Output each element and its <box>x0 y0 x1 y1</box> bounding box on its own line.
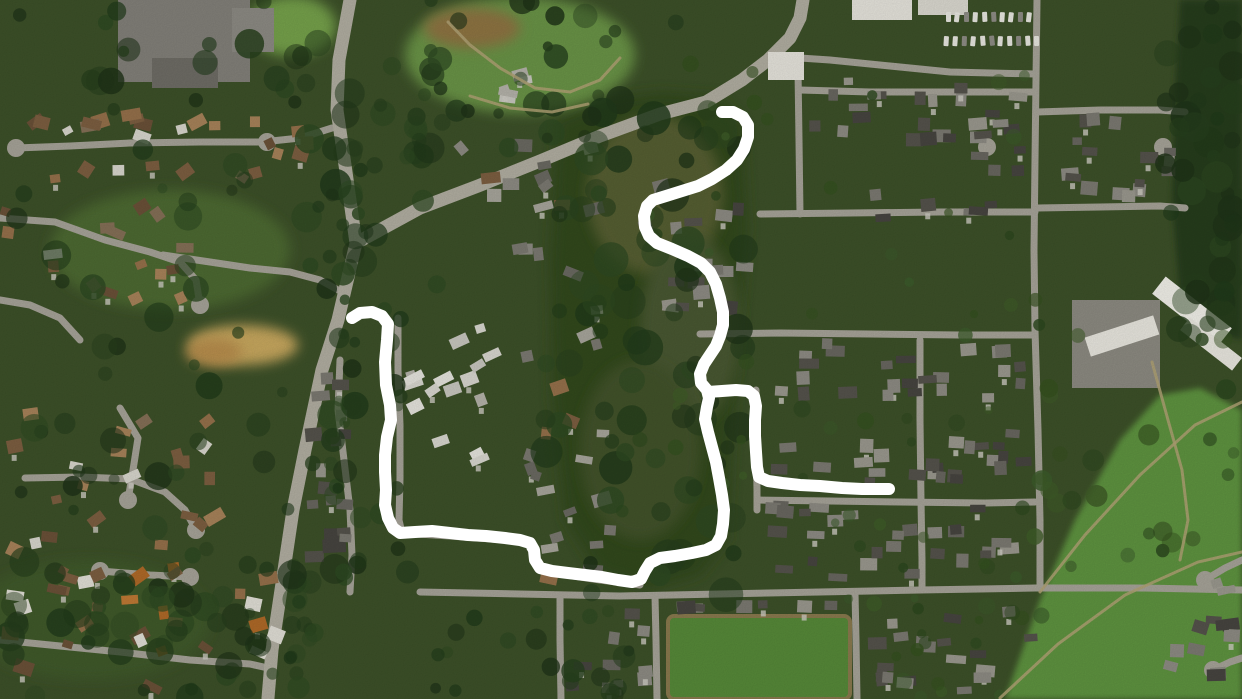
satellite-map <box>0 0 1242 699</box>
map-screenshot <box>0 0 1242 699</box>
grain-layer <box>0 0 1242 699</box>
